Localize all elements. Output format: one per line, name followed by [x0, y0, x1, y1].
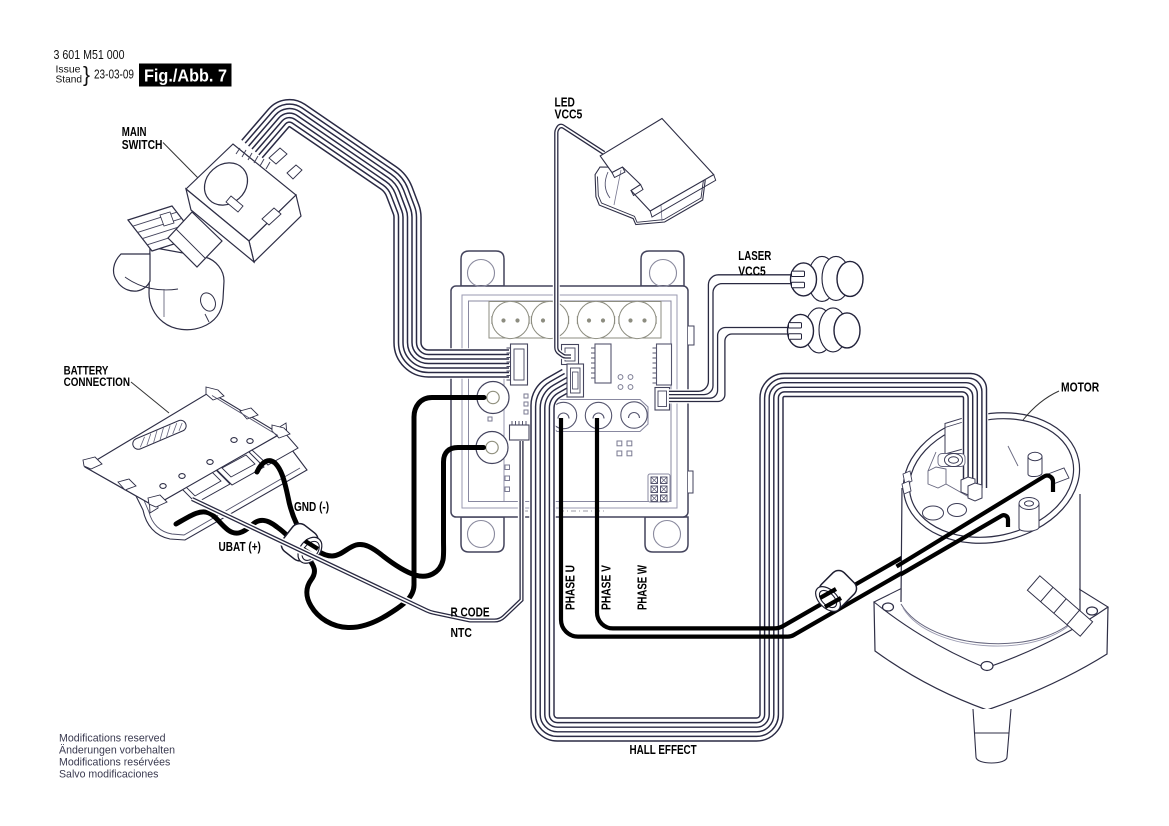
svg-text:Modifications resérvées: Modifications resérvées — [59, 757, 171, 769]
svg-text:NTC: NTC — [451, 626, 472, 640]
svg-text:Salvo modificaciones: Salvo modificaciones — [59, 769, 159, 781]
svg-text:LASER: LASER — [738, 249, 771, 263]
svg-text:MOTOR: MOTOR — [1061, 380, 1099, 394]
svg-text:PHASE W: PHASE W — [636, 565, 650, 610]
svg-text:HALL EFFECT: HALL EFFECT — [630, 743, 697, 757]
svg-text:3 601 M51 000: 3 601 M51 000 — [54, 47, 125, 62]
svg-text:23-03-09: 23-03-09 — [94, 67, 134, 82]
svg-text:VCC5: VCC5 — [738, 265, 765, 279]
svg-text:PHASE V: PHASE V — [600, 564, 614, 610]
svg-text:R CODE: R CODE — [451, 606, 490, 620]
svg-text:CONNECTION: CONNECTION — [64, 376, 130, 389]
svg-text:VCC5: VCC5 — [555, 107, 583, 121]
svg-text:MAIN: MAIN — [122, 125, 147, 139]
svg-text:Fig./Abb. 7: Fig./Abb. 7 — [144, 66, 227, 86]
svg-text:GND (-): GND (-) — [294, 500, 329, 514]
svg-text:PHASE U: PHASE U — [564, 565, 578, 610]
svg-text:Stand: Stand — [56, 74, 83, 86]
svg-text:UBAT (+): UBAT (+) — [219, 540, 261, 554]
svg-text:Modifications reserved: Modifications reserved — [59, 733, 166, 745]
svg-text:}: } — [83, 64, 90, 87]
svg-text:Änderungen vorbehalten: Änderungen vorbehalten — [59, 745, 175, 757]
svg-text:SWITCH: SWITCH — [122, 138, 163, 152]
